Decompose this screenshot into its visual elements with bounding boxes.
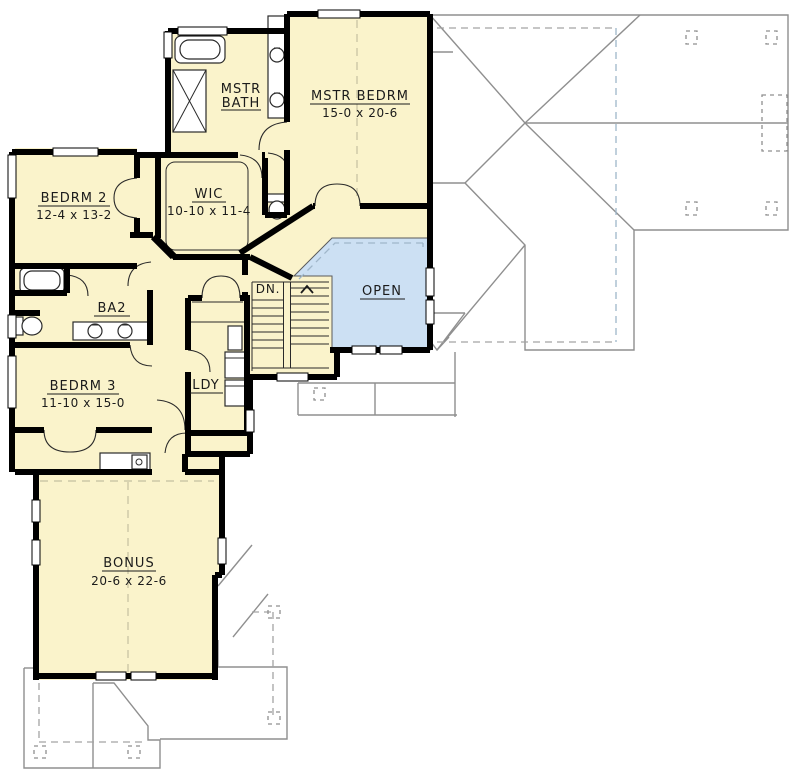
- room-label-wic: WIC: [195, 187, 224, 202]
- room-label-mstr-bath-line2: BATH: [222, 96, 261, 111]
- room-dims-bedrm3: 11-10 x 15-0: [41, 396, 125, 410]
- roof-marker: [314, 388, 325, 400]
- floor-plan-page: MSTR BATH MSTR BEDRM 15-0 x 20-6 BEDRM 2…: [0, 0, 800, 775]
- counter-sink: [100, 453, 150, 471]
- room-label-bonus: BONUS: [103, 556, 154, 571]
- room-label-mstr-bedrm: MSTR BEDRM: [311, 89, 409, 104]
- floor-plan-drawing: MSTR BATH MSTR BEDRM 15-0 x 20-6 BEDRM 2…: [0, 0, 800, 775]
- roof-marker: [128, 746, 140, 758]
- room-label-bedrm2: BEDRM 2: [41, 191, 108, 206]
- roof-marker: [766, 31, 777, 44]
- toilet: [15, 317, 42, 335]
- roof-marker: [268, 712, 280, 724]
- room-label-ldy: LDY: [192, 378, 219, 393]
- room-dims-mstr-bedrm: 15-0 x 20-6: [322, 106, 398, 120]
- room-label-ba2: BA2: [97, 301, 126, 316]
- roof-marker: [766, 202, 777, 215]
- ba2-double-vanity: [73, 322, 150, 340]
- roof-marker: [686, 202, 697, 215]
- room-dims-wic: 10-10 x 11-4: [167, 204, 251, 218]
- room-dims-bonus: 20-6 x 22-6: [91, 574, 167, 588]
- room-label-bedrm3: BEDRM 3: [50, 379, 117, 394]
- room-label-mstr-bath-line1: MSTR: [221, 82, 261, 97]
- room-label-open: OPEN: [362, 284, 402, 299]
- room-dims-bedrm2: 12-4 x 13-2: [36, 208, 112, 222]
- master-shower: [173, 70, 206, 132]
- master-tub: [175, 36, 225, 63]
- roof-marker: [34, 746, 46, 758]
- roof-marker: [686, 31, 697, 44]
- ba2-tub: [20, 268, 64, 293]
- stairs-down-label: DN.: [256, 282, 280, 296]
